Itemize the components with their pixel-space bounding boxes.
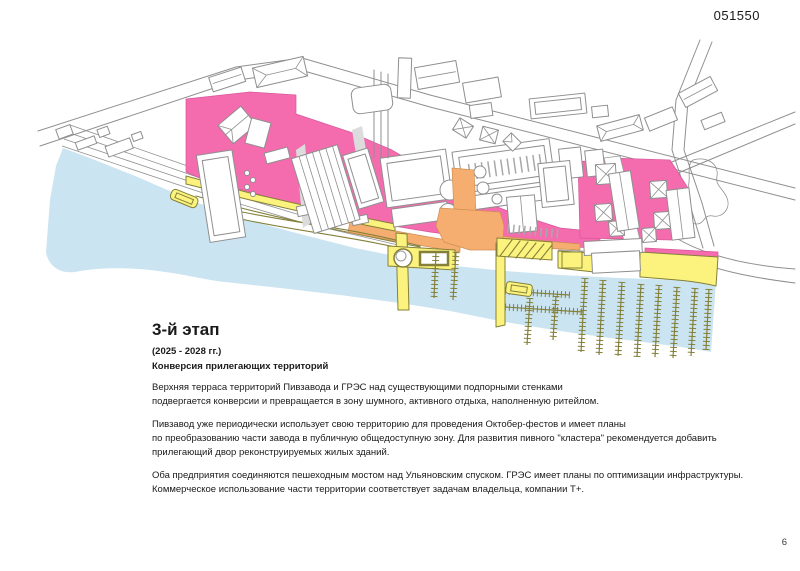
- stage-subtitle: Конверсия прилегающих территорий: [152, 361, 328, 372]
- description-text: Верхняя терраса территорий Пивзавода и Г…: [152, 381, 772, 506]
- stage-period: (2025 - 2028 гг.): [152, 346, 328, 357]
- paragraph-brewery-plans: Пивзавод уже периодически использует сво…: [152, 418, 772, 460]
- stage-title-block: 3-й этап (2025 - 2028 гг.) Конверсия при…: [152, 320, 328, 372]
- page-number: 6: [782, 537, 787, 548]
- stage-title: 3-й этап: [152, 320, 328, 340]
- paragraph-terrace-conversion: Верхняя терраса территорий Пивзавода и Г…: [152, 381, 772, 409]
- paragraph-bridge-gres: Оба предприятия соединяются пешеходным м…: [152, 469, 772, 497]
